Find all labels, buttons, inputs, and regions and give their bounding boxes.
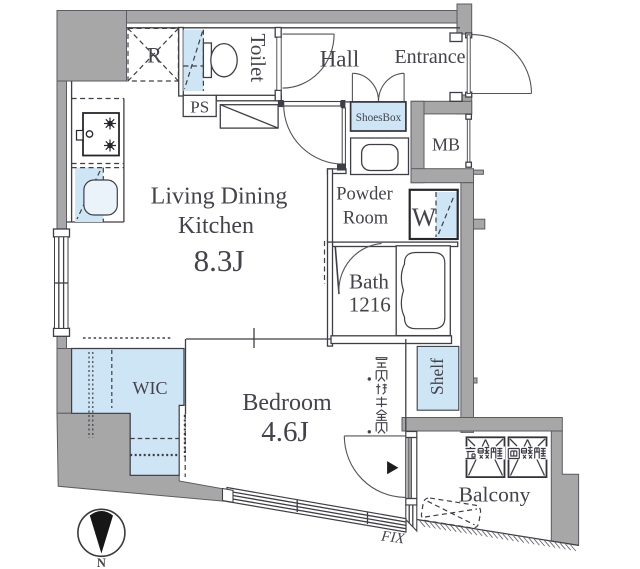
svg-text:Hall: Hall xyxy=(320,47,360,72)
svg-text:Bath: Bath xyxy=(349,270,389,294)
svg-text:Kitchen: Kitchen xyxy=(178,213,254,239)
svg-text:Bedroom: Bedroom xyxy=(242,390,332,416)
svg-text:4.6J: 4.6J xyxy=(261,416,309,448)
svg-text:MB: MB xyxy=(432,135,460,155)
svg-text:R: R xyxy=(147,43,162,68)
svg-text:Powder: Powder xyxy=(336,185,393,205)
svg-text:8.3J: 8.3J xyxy=(194,243,245,278)
svg-text:Entrance: Entrance xyxy=(394,46,465,68)
svg-text:WIC: WIC xyxy=(133,378,168,398)
svg-text:Toilet: Toilet xyxy=(246,33,270,82)
svg-text:PS: PS xyxy=(190,98,209,117)
svg-text:Living Dining: Living Dining xyxy=(151,184,288,210)
svg-text:N: N xyxy=(97,556,106,569)
svg-text:Balcony: Balcony xyxy=(459,483,531,507)
svg-text:Room: Room xyxy=(343,209,389,229)
svg-text:ShoesBox: ShoesBox xyxy=(356,112,402,124)
svg-text:1216: 1216 xyxy=(349,293,391,317)
svg-text:W: W xyxy=(412,203,437,232)
svg-text:Shelf: Shelf xyxy=(427,358,447,395)
